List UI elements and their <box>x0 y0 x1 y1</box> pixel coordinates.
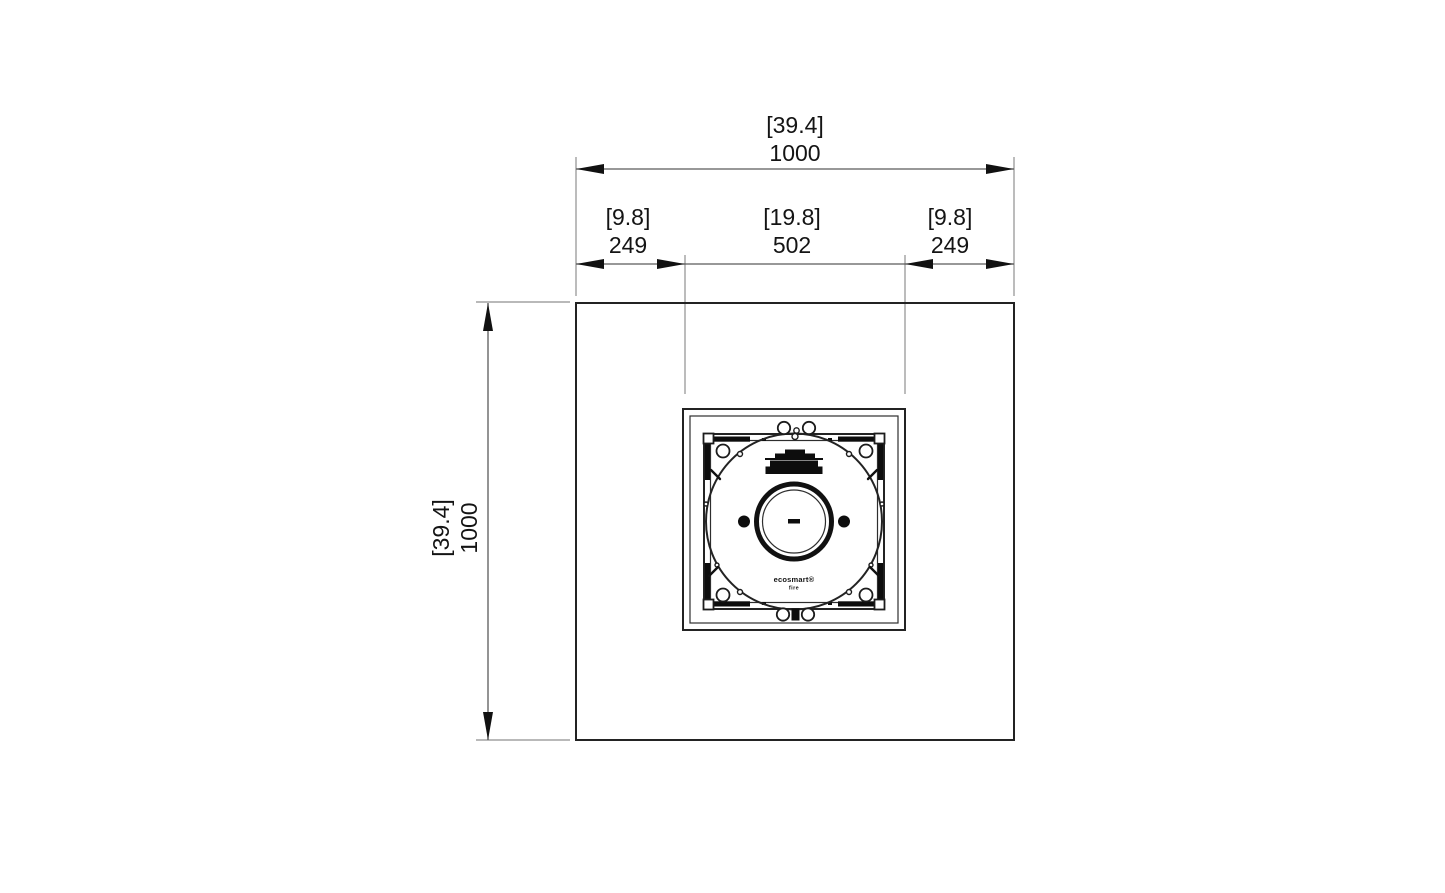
valve-assembly <box>765 450 823 475</box>
corner-pad <box>704 434 714 444</box>
arrow-left-icon <box>576 259 604 269</box>
side-knob <box>838 516 850 528</box>
dim-top-left-mm: 249 <box>609 232 647 258</box>
pin-hole <box>704 502 708 506</box>
valve-bar <box>775 454 815 459</box>
dim-top-right-mm: 249 <box>931 232 969 258</box>
fitting-hole <box>778 422 790 434</box>
arrow-left-icon <box>905 259 933 269</box>
dim-top-left-inches: [9.8] <box>606 204 651 230</box>
corner-pad <box>875 434 885 444</box>
pin-hole <box>847 452 852 457</box>
technical-drawing-svg: [39.4] 1000 [9.8] 249 [19.8] 502 [9.8] 2… <box>0 0 1445 893</box>
screw-hole <box>860 589 873 602</box>
dim-top-right-inches: [9.8] <box>928 204 973 230</box>
fitting-hole <box>777 608 789 620</box>
screw-hole <box>717 445 730 458</box>
latch-block <box>792 609 800 621</box>
dim-side-overall-inches: [39.4] <box>428 499 454 557</box>
arrow-left-icon <box>576 164 604 174</box>
dim-top-overall-mm: 1000 <box>769 140 820 166</box>
dim-top-overall-inches: [39.4] <box>766 112 824 138</box>
dim-top-center-mm: 502 <box>773 232 811 258</box>
corner-pad <box>704 600 714 610</box>
burner-assembly: ecosmart® fire <box>683 409 905 630</box>
dimension-side-overall: [39.4] 1000 <box>428 302 570 740</box>
bracket-bar <box>705 444 710 480</box>
arrow-right-icon <box>986 259 1014 269</box>
burner-center-slot <box>788 519 800 524</box>
fitting-hole <box>802 608 814 620</box>
valve-bar <box>766 467 823 475</box>
screw-hole <box>860 445 873 458</box>
bracket-bar <box>878 444 883 480</box>
bracket-bar <box>838 601 874 606</box>
arrow-up-icon <box>483 303 493 331</box>
fitting-notch <box>792 434 798 440</box>
side-knob <box>738 516 750 528</box>
pin-hole <box>738 590 743 595</box>
valve-bar <box>765 458 823 460</box>
arrow-right-icon <box>657 259 685 269</box>
dim-top-center-inches: [19.8] <box>763 204 821 230</box>
fitting-hole <box>803 422 815 434</box>
arrow-down-icon <box>483 712 493 740</box>
valve-bar <box>785 450 805 454</box>
bracket-bar <box>714 437 750 442</box>
dimension-top-segments: [9.8] 249 [19.8] 502 [9.8] 249 <box>576 204 1014 394</box>
bracket-bar <box>714 601 750 606</box>
bracket-bar <box>878 563 883 599</box>
brand-logo-text: ecosmart® <box>774 575 815 584</box>
pin-hole <box>880 502 884 506</box>
valve-bar <box>770 461 818 467</box>
dim-side-overall-mm: 1000 <box>456 502 482 553</box>
pin-hole <box>847 590 852 595</box>
screw-hole <box>717 589 730 602</box>
pin-hole <box>738 452 743 457</box>
arrow-right-icon <box>986 164 1014 174</box>
fitting-notch <box>794 428 799 433</box>
corner-pad <box>875 600 885 610</box>
drawing-canvas: [39.4] 1000 [9.8] 249 [19.8] 502 [9.8] 2… <box>0 0 1445 893</box>
brand-logo-subtext: fire <box>789 586 799 592</box>
bracket-bar <box>838 437 874 442</box>
bracket-bar <box>705 563 710 599</box>
